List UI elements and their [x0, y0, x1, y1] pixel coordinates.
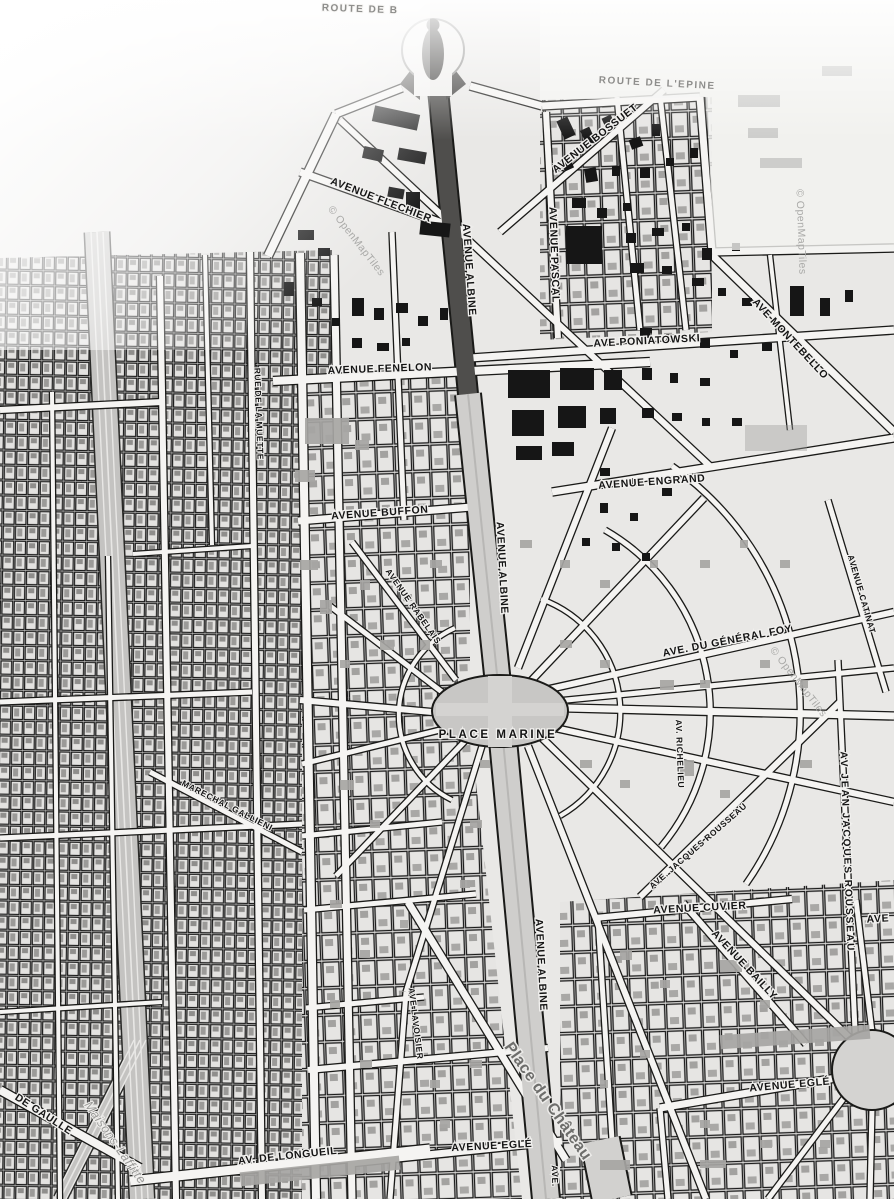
- street-label-ave-fragment-right: AVE: [866, 912, 889, 925]
- street-map: ROUTE DE B ROUTE DE L'EPINE AVENUE FLECH…: [0, 0, 894, 1199]
- place-label-place-marine: PLACE MARINE: [439, 729, 558, 741]
- street-label-ave-fragment-bottom: AVE.: [550, 1165, 561, 1187]
- map-canvas[interactable]: ROUTE DE B ROUTE DE L'EPINE AVENUE FLECH…: [0, 0, 894, 1199]
